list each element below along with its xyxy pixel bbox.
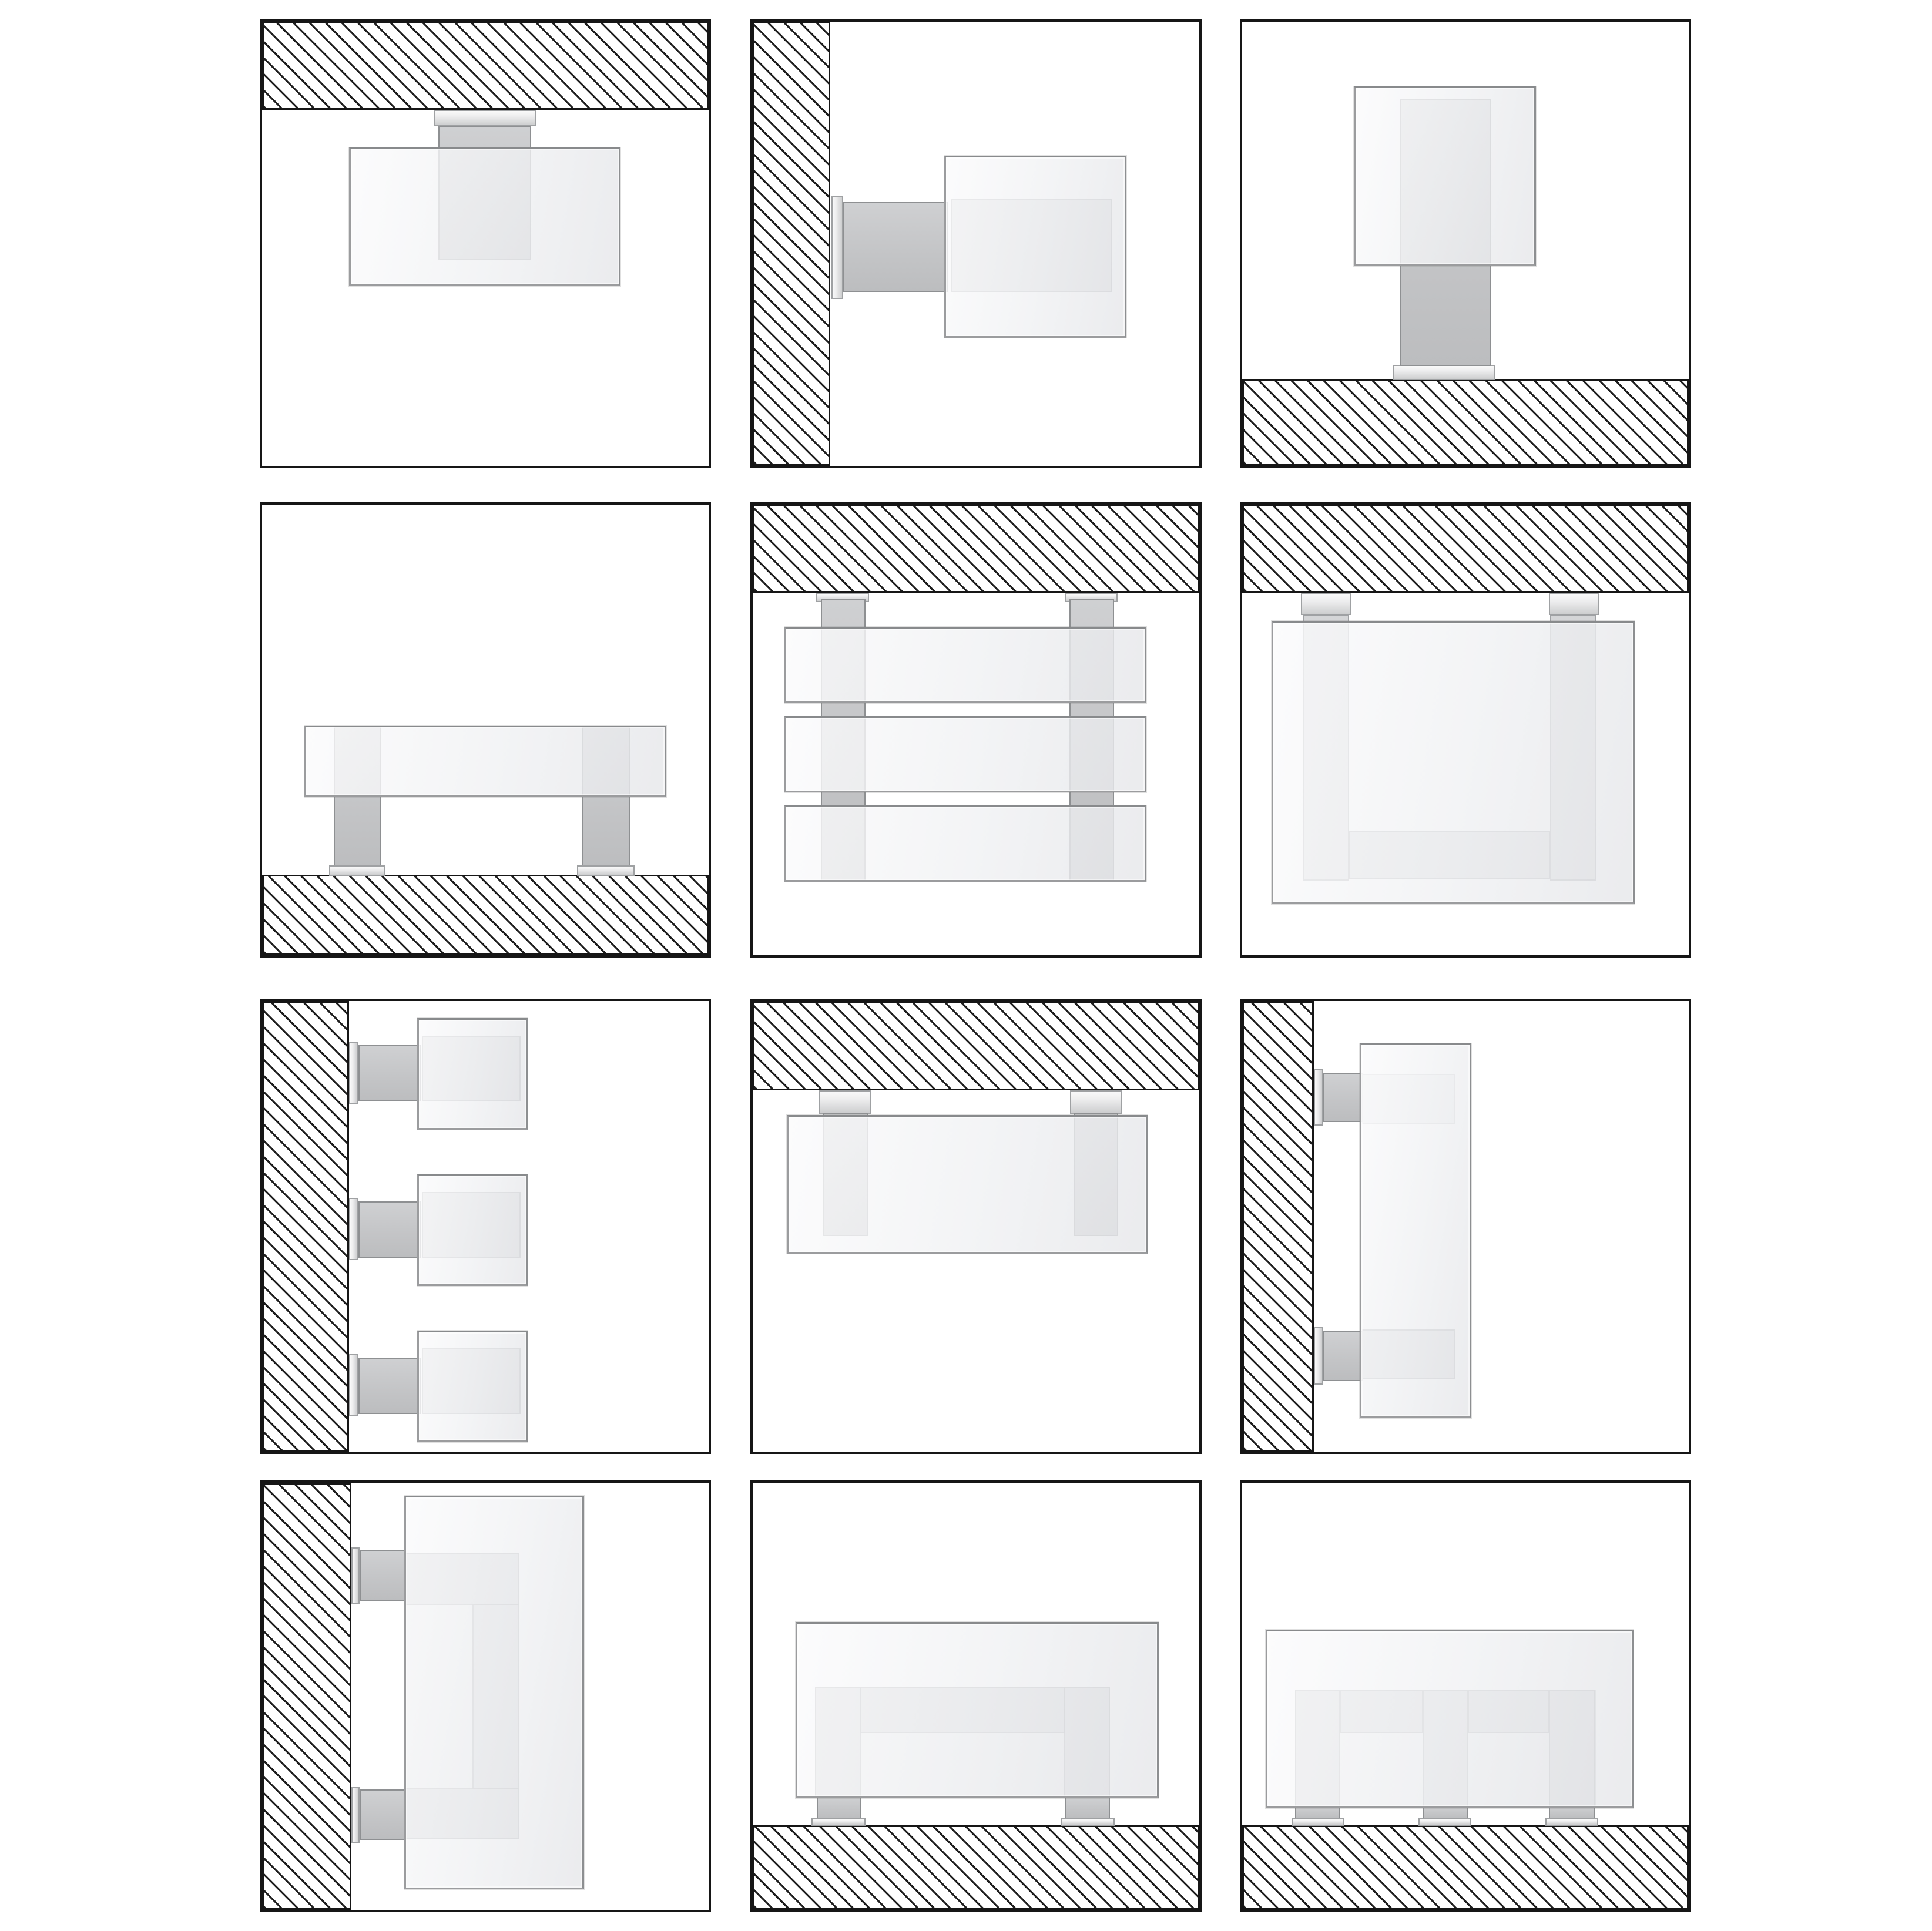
wall-hatch xyxy=(262,1001,349,1452)
mount-arm-3 xyxy=(358,1358,421,1414)
sign-panel xyxy=(404,1496,584,1889)
mount-arm-1 xyxy=(358,1045,421,1101)
sign-panel xyxy=(1266,1630,1634,1808)
wall-hatch xyxy=(753,22,830,466)
mount-plate-1 xyxy=(349,1042,358,1104)
ceiling-cap-left xyxy=(819,1090,871,1114)
diagram-cell-wall-large-panel-c-bracket xyxy=(260,1480,711,1912)
mount-arm-top xyxy=(1323,1073,1363,1122)
base-plate-left xyxy=(811,1818,866,1826)
mount-plate-bottom xyxy=(351,1787,360,1843)
base-plate-1 xyxy=(1292,1818,1344,1826)
mount-arm-2 xyxy=(358,1201,421,1258)
sign-panel-2 xyxy=(417,1174,528,1286)
sign-board-3 xyxy=(784,805,1146,882)
sign-panel xyxy=(796,1622,1159,1798)
base-plate xyxy=(1393,365,1495,380)
ceiling-hatch xyxy=(753,1001,1199,1090)
mount-arm xyxy=(843,202,948,292)
sign-panel xyxy=(787,1115,1148,1254)
sign-board-1 xyxy=(784,627,1146,703)
base-plate-3 xyxy=(1545,1818,1598,1826)
floor-hatch xyxy=(262,875,709,955)
foot-post-right xyxy=(1065,1796,1110,1820)
diagram-cell-wall-single-sign-side xyxy=(750,19,1202,468)
mount-plate xyxy=(831,196,843,299)
ceiling-hatch xyxy=(753,505,1199,593)
floor-hatch xyxy=(753,1825,1199,1910)
floor-hatch xyxy=(1242,379,1689,466)
mounting-diagrams-grid xyxy=(0,0,1932,1931)
mount-plate-top xyxy=(1314,1069,1323,1126)
mount-arm-bottom xyxy=(1323,1331,1363,1381)
diagram-cell-ceiling-large-panel xyxy=(1240,502,1691,958)
foot-post-left xyxy=(817,1796,861,1820)
sign-panel xyxy=(944,156,1126,338)
diagram-cell-floor-monolith-two-feet xyxy=(750,1480,1202,1912)
sign-panel xyxy=(1354,86,1536,266)
diagram-cell-ceiling-shallow-wide-panel xyxy=(750,999,1202,1454)
mount-arm-bottom xyxy=(360,1789,405,1840)
diagram-cell-wall-tall-narrow-panel xyxy=(1240,999,1691,1454)
mount-plate xyxy=(434,110,536,126)
sign-panel xyxy=(1360,1043,1471,1418)
sign-panel xyxy=(349,147,620,286)
ceiling-hatch xyxy=(262,22,709,110)
sign-panel xyxy=(1272,621,1635,904)
floor-hatch xyxy=(1242,1825,1689,1910)
base-plate-right xyxy=(577,865,635,876)
sign-panel-1 xyxy=(417,1018,528,1130)
wall-hatch xyxy=(262,1483,351,1910)
mount-plate-2 xyxy=(349,1198,358,1260)
mount-plate-bottom xyxy=(1314,1327,1323,1385)
ceiling-hatch xyxy=(1242,505,1689,593)
diagram-cell-floor-two-post-low-panel xyxy=(260,502,711,958)
diagram-cell-wall-three-small-signs xyxy=(260,999,711,1454)
base-plate-2 xyxy=(1418,1818,1471,1826)
diagram-cell-ceiling-single-sign-front xyxy=(260,19,711,468)
wall-hatch xyxy=(1242,1001,1314,1452)
ceiling-cap-right xyxy=(1070,1090,1122,1114)
diagram-cell-floor-pedestal-sign-front xyxy=(1240,19,1691,468)
ceiling-cap-left xyxy=(1301,593,1351,615)
sign-panel xyxy=(304,726,666,797)
ceiling-cap-right xyxy=(1549,593,1599,615)
mount-arm-top xyxy=(360,1550,405,1601)
sign-panel-3 xyxy=(417,1331,528,1442)
mount-plate-3 xyxy=(349,1354,358,1416)
mount-plate-top xyxy=(351,1547,360,1604)
base-plate-left xyxy=(329,865,385,876)
sign-board-2 xyxy=(784,716,1146,792)
diagram-cell-ceiling-three-boards xyxy=(750,502,1202,958)
base-plate-right xyxy=(1061,1818,1115,1826)
diagram-cell-floor-monolith-three-feet xyxy=(1240,1480,1691,1912)
